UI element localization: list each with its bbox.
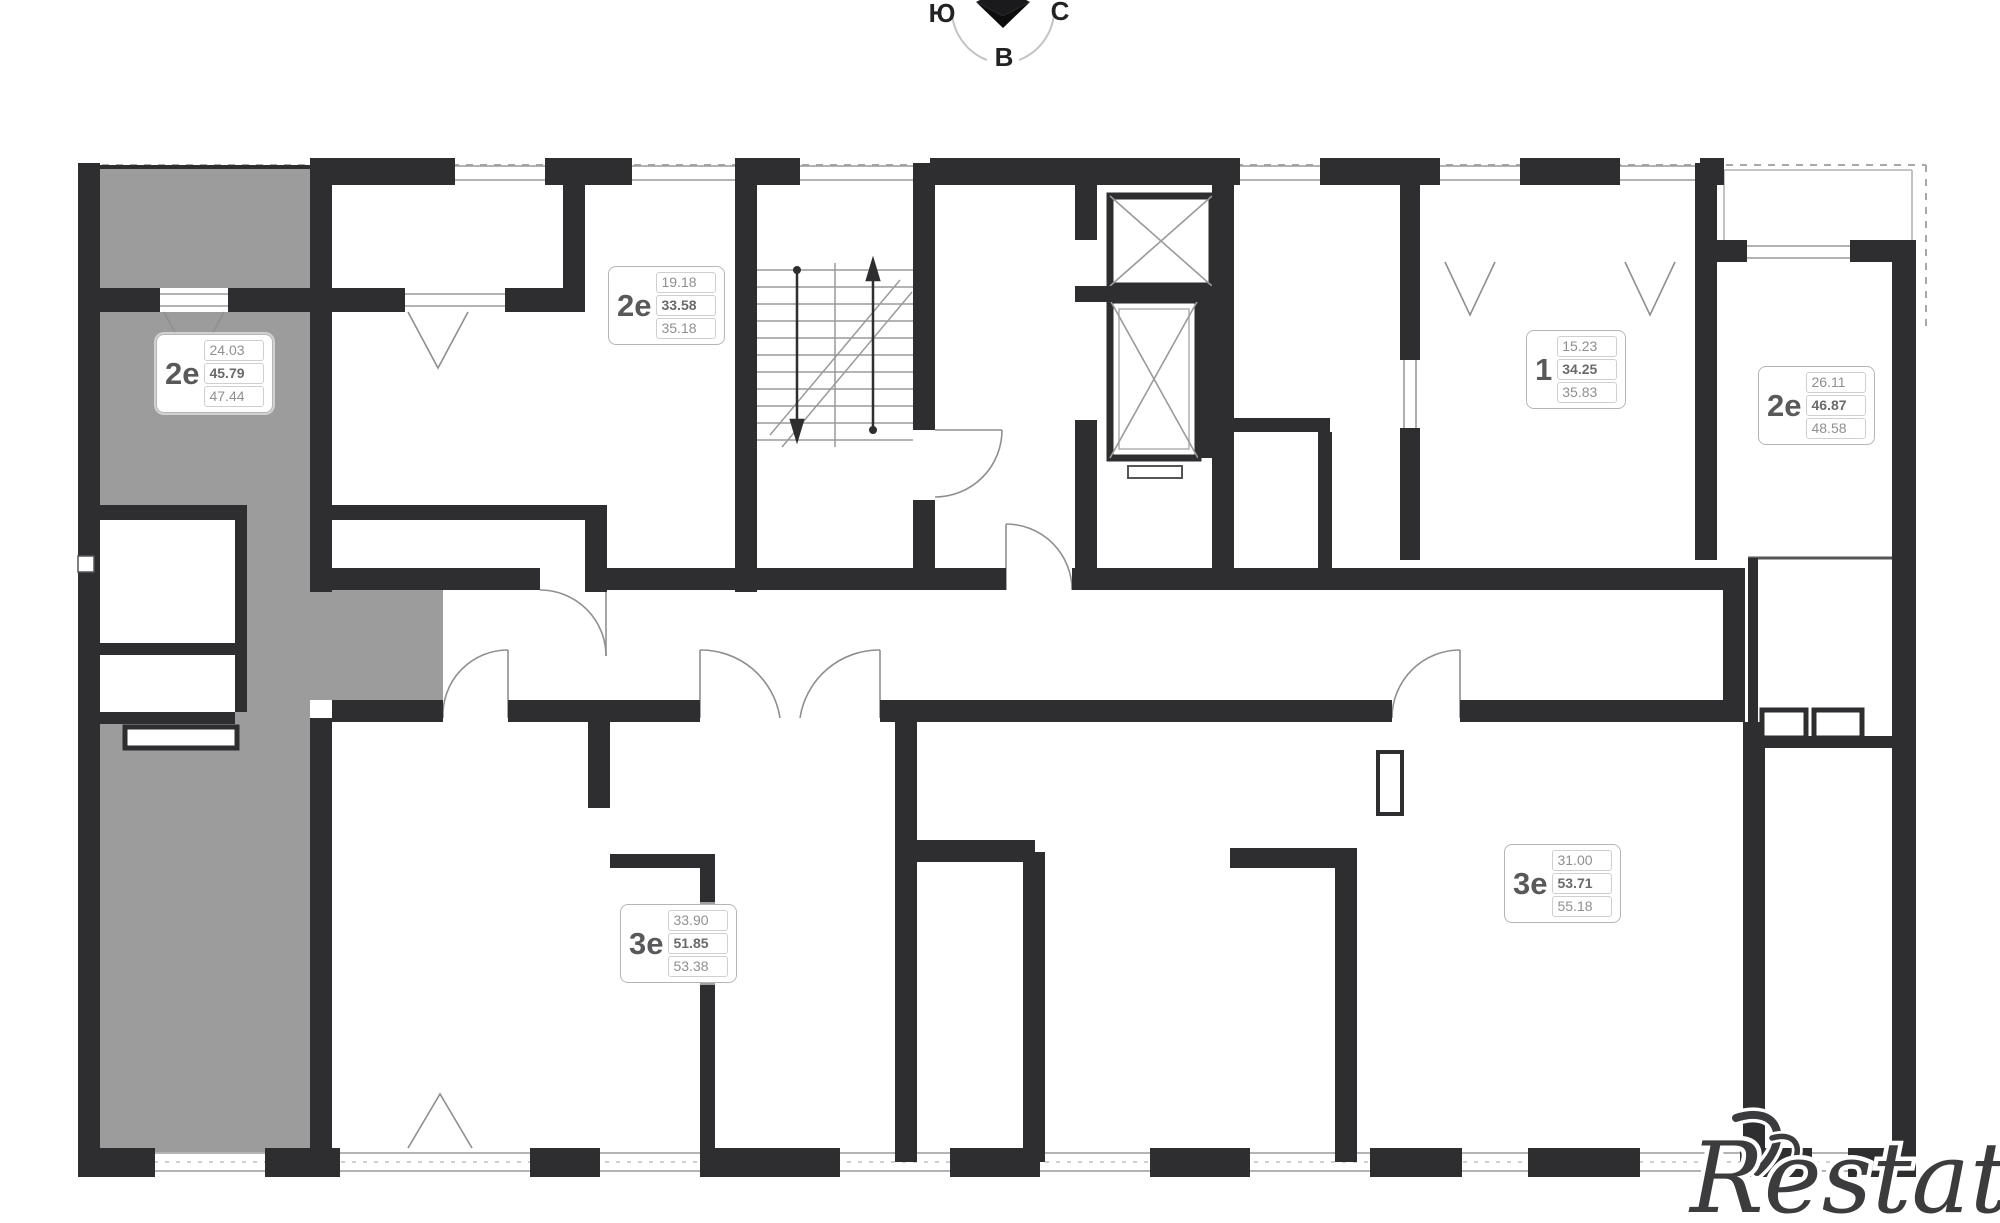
floor-plan-svg: Ю С В Restate xyxy=(0,0,2000,1223)
apartment-type: 2е xyxy=(617,290,651,321)
apartment-label-1-top-right[interactable]: 1 15.23 34.25 35.83 xyxy=(1526,330,1626,409)
compass-arc-right xyxy=(1019,14,1054,60)
area-room: 26.11 xyxy=(1806,372,1866,393)
compass: Ю С В xyxy=(929,0,1070,72)
apartment-areas: 26.11 46.87 48.58 xyxy=(1806,372,1866,439)
apartment-areas: 33.90 51.85 53.38 xyxy=(668,910,728,977)
apartment-areas: 24.03 45.79 47.44 xyxy=(204,340,264,407)
area-room: 15.23 xyxy=(1557,336,1617,357)
apartment-type: 2е xyxy=(165,358,199,389)
area-living: 33.58 xyxy=(656,295,716,316)
vent-shaft-2 xyxy=(1128,466,1182,478)
area-total: 35.18 xyxy=(656,318,716,339)
area-living: 53.71 xyxy=(1552,873,1612,894)
apartment-label-2e-top[interactable]: 2е 19.18 33.58 35.18 xyxy=(608,266,725,345)
area-total: 48.58 xyxy=(1806,418,1866,439)
compass-east-label: В xyxy=(995,42,1014,72)
compass-south-label: Ю xyxy=(929,0,956,28)
apartment-type: 1 xyxy=(1535,354,1552,385)
apartment-type: 3е xyxy=(629,928,663,959)
area-living: 46.87 xyxy=(1806,395,1866,416)
apartment-type: 3е xyxy=(1513,868,1547,899)
area-total: 47.44 xyxy=(204,386,264,407)
area-living: 51.85 xyxy=(668,933,728,954)
floorplan-canvas: Ю С В Restate 2е 24.03 45.79 47.44 2е 19… xyxy=(0,0,2000,1223)
watermark: Restate xyxy=(1688,1115,2000,1223)
compass-arc-left xyxy=(952,14,987,60)
area-room: 33.90 xyxy=(668,910,728,931)
area-total: 35.83 xyxy=(1557,382,1617,403)
watermark-text: Restate xyxy=(1688,1122,2000,1223)
elevator-shafts xyxy=(1110,170,1212,478)
area-room: 24.03 xyxy=(204,340,264,361)
apartment-label-2e-selected[interactable]: 2е 24.03 45.79 47.44 xyxy=(156,334,273,413)
area-living: 45.79 xyxy=(204,363,264,384)
staircase xyxy=(757,260,913,447)
apartment-label-2e-right[interactable]: 2е 26.11 46.87 48.58 xyxy=(1758,366,1875,445)
apartment-areas: 15.23 34.25 35.83 xyxy=(1557,336,1617,403)
apartment-areas: 31.00 53.71 55.18 xyxy=(1552,850,1612,917)
apartment-areas: 19.18 33.58 35.18 xyxy=(656,272,716,339)
apartment-type: 2е xyxy=(1767,390,1801,421)
area-total: 55.18 xyxy=(1552,896,1612,917)
area-room: 19.18 xyxy=(656,272,716,293)
elevator-shaft-large xyxy=(1110,300,1198,458)
area-room: 31.00 xyxy=(1552,850,1612,871)
apartment-label-3e-bottom-left[interactable]: 3е 33.90 51.85 53.38 xyxy=(620,904,737,983)
compass-north-label: С xyxy=(1051,0,1070,26)
area-total: 53.38 xyxy=(668,956,728,977)
elevator-shaft-small xyxy=(1110,196,1212,286)
apartment-label-3e-bottom-right[interactable]: 3е 31.00 53.71 55.18 xyxy=(1504,844,1621,923)
area-living: 34.25 xyxy=(1557,359,1617,380)
